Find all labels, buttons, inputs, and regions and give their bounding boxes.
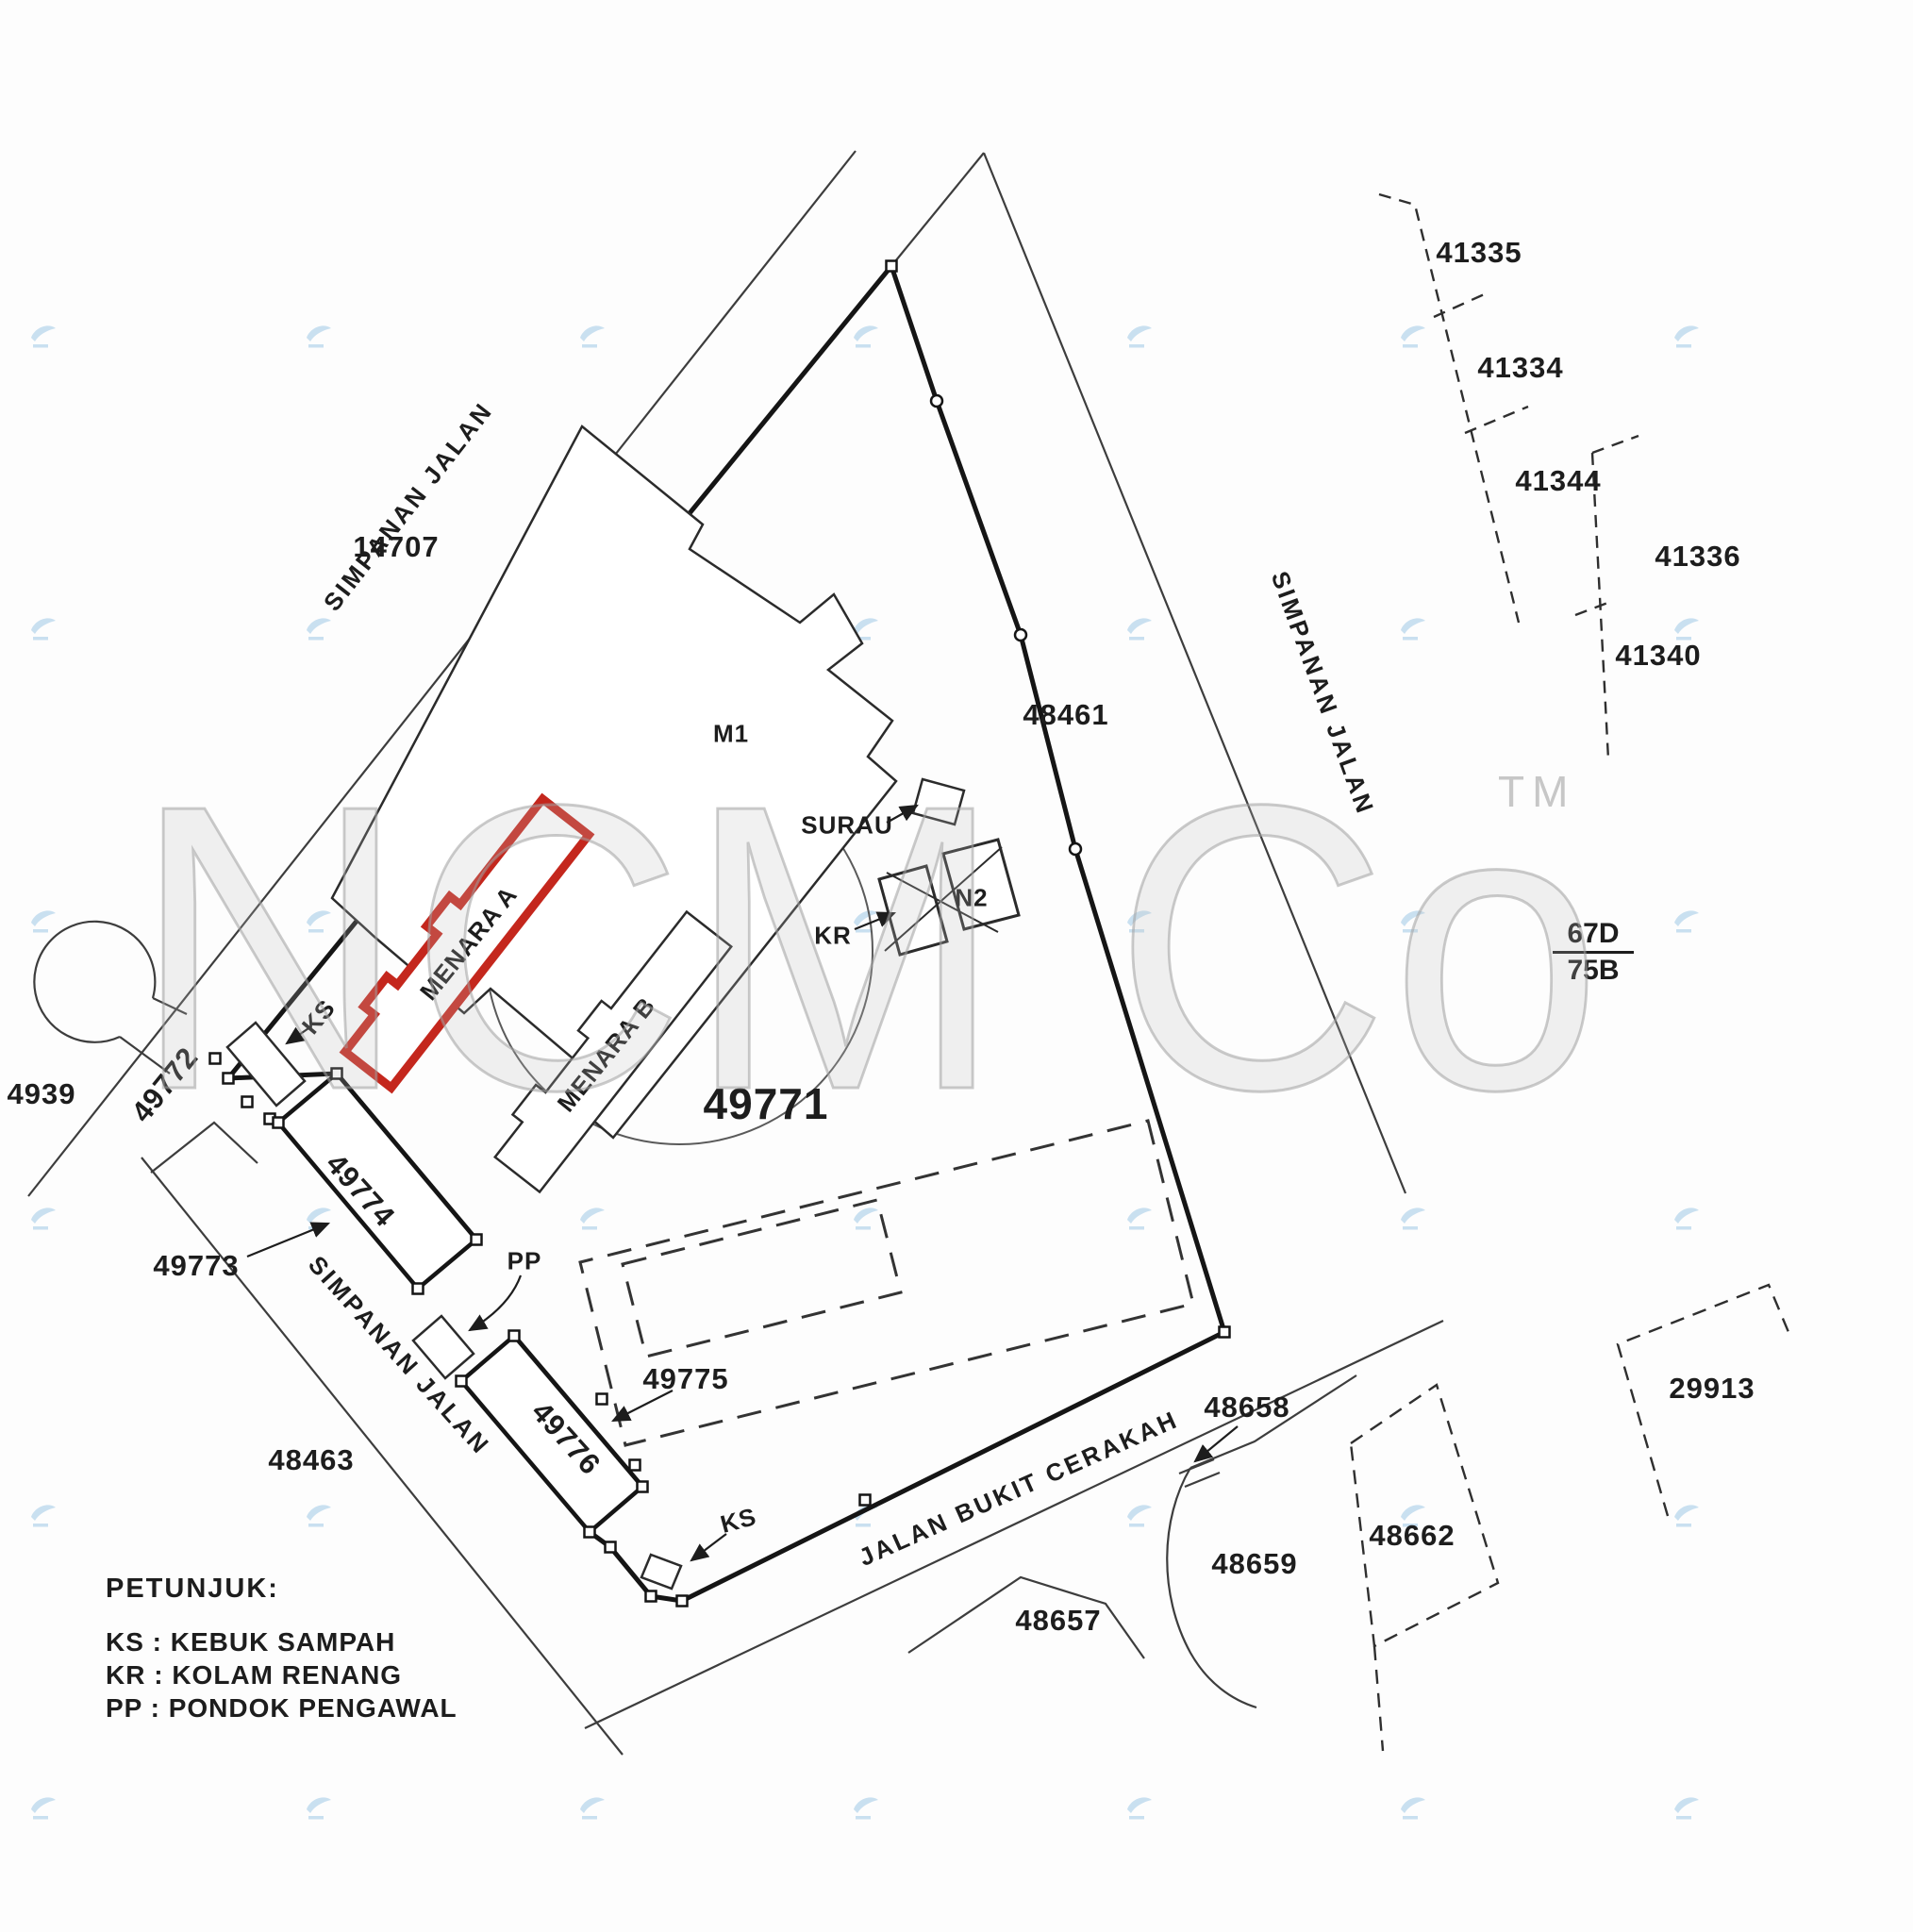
fraction-top: 67D — [1553, 917, 1634, 951]
legend-item-ks: KS : KEBUK SAMPAH — [106, 1625, 457, 1658]
legend: PETUNJUK: KS : KEBUK SAMPAH KR : KOLAM R… — [106, 1574, 457, 1724]
small-lot-outlines — [278, 1074, 642, 1532]
site-plan-map: NCM Co TM 67D 75B PETUNJUK: KS : KEBUK S… — [0, 0, 1913, 1932]
pool-kr-outline — [879, 866, 947, 955]
hut-pp — [413, 1316, 474, 1378]
lot-ref-fraction: 67D 75B — [1553, 917, 1634, 988]
legend-title: PETUNJUK: — [106, 1574, 457, 1605]
lot-29913-outline — [1618, 1285, 1788, 1516]
lot-49776-outline — [461, 1336, 642, 1532]
cul-de-sac-loop — [34, 922, 155, 1042]
building-surau-outline — [913, 779, 964, 824]
lot-48662-outline — [1351, 1385, 1498, 1751]
fraction-bottom: 75B — [1553, 951, 1634, 988]
legend-item-kr: KR : KOLAM RENANG — [106, 1658, 457, 1691]
hut-ks-bottom — [641, 1555, 681, 1589]
building-p1-dashed — [580, 1121, 1193, 1445]
pool-kr-and-n2 — [879, 840, 1019, 955]
legend-item-pp: PP : PONDOK PENGAWAL — [106, 1691, 457, 1724]
lot-49774-outline — [278, 1074, 476, 1289]
building-n2-outline — [943, 840, 1019, 929]
boundary-chain-41335 — [1379, 194, 1639, 759]
